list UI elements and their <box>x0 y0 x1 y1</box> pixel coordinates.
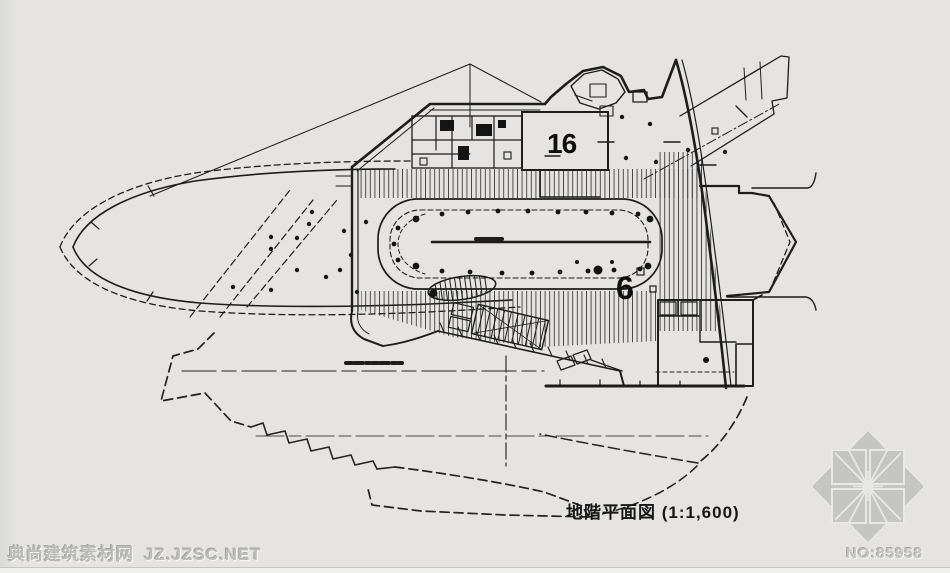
floor-plan-drawing <box>0 0 950 573</box>
jzsc-compass-logo-icon <box>813 429 923 544</box>
floor-label-16: 16 <box>547 130 576 158</box>
drawing-caption: 地階平面図 (1:1,600) <box>566 498 740 523</box>
reference-lines <box>182 356 708 466</box>
watermark-site-name: 典尚建筑素材网 <box>8 545 134 564</box>
scan-bottom-edge <box>0 567 950 573</box>
site-boundary <box>161 333 747 517</box>
watermark-site-code: JZ.JZSC.NET <box>144 545 262 564</box>
column-dots-site <box>231 210 368 294</box>
floor-label-6: 6 <box>616 272 634 304</box>
scanned-plan-page: 16 6 地階平面図 (1:1,600) 典尚建筑素材网JZ.JZSC.NET … <box>0 0 950 573</box>
watermark-item-number: NO:85958 <box>846 545 923 562</box>
watermark-site: 典尚建筑素材网JZ.JZSC.NET <box>8 540 272 565</box>
